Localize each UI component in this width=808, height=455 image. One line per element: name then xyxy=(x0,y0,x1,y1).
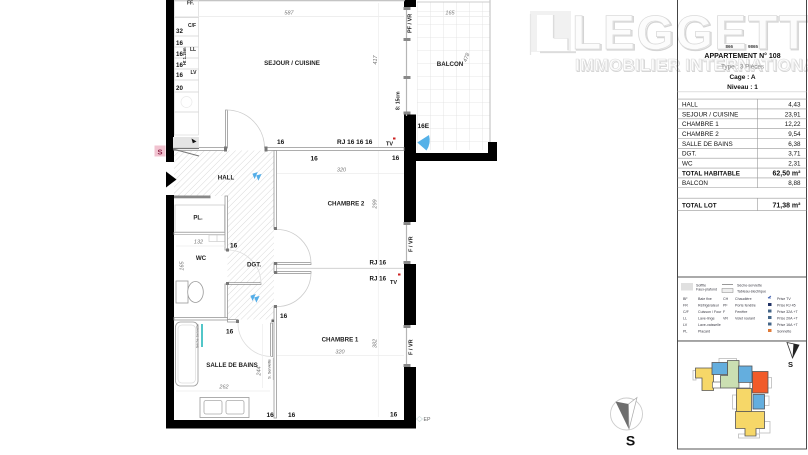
svg-text:FF.: FF. xyxy=(187,1,195,7)
svg-text:Réfrigérateur: Réfrigérateur xyxy=(698,304,720,308)
svg-text:Sèche-serviette: Sèche-serviette xyxy=(737,284,762,288)
svg-text:Porte fenêtre: Porte fenêtre xyxy=(735,304,756,308)
svg-text:S: S xyxy=(157,148,162,157)
svg-text:9865: 9865 xyxy=(748,44,759,49)
svg-text:Niveau : 1: Niveau : 1 xyxy=(727,84,758,91)
svg-text:Prise 16A +T: Prise 16A +T xyxy=(777,323,798,327)
svg-text:F / VR: F / VR xyxy=(409,339,415,355)
svg-text:Fenêtre: Fenêtre xyxy=(735,310,747,314)
svg-text:TOTAL LOT: TOTAL LOT xyxy=(682,202,717,209)
svg-text:Chaudière: Chaudière xyxy=(735,297,752,301)
svg-text:Lave-vaisselle: Lave-vaisselle xyxy=(698,323,721,327)
svg-text:16: 16 xyxy=(176,40,183,47)
svg-text:16E: 16E xyxy=(418,123,430,130)
svg-text:16: 16 xyxy=(176,72,183,79)
svg-text:16: 16 xyxy=(390,412,398,419)
svg-text:S: S xyxy=(626,433,635,449)
svg-text:382: 382 xyxy=(373,339,379,348)
svg-text:165: 165 xyxy=(445,11,455,17)
svg-text:LL: LL xyxy=(683,317,687,321)
svg-text:CHAMBRE 2: CHAMBRE 2 xyxy=(682,131,719,138)
svg-text:CHAMBRE 1: CHAMBRE 1 xyxy=(322,337,359,344)
svg-text:165: 165 xyxy=(180,260,186,270)
svg-text:RJ 16 16 16: RJ 16 16 16 xyxy=(337,139,373,146)
svg-text:417: 417 xyxy=(373,54,379,64)
svg-text:PL.: PL. xyxy=(193,216,203,222)
svg-text:16: 16 xyxy=(176,51,183,58)
svg-text:Prise 20A +T: Prise 20A +T xyxy=(777,317,798,321)
svg-text:Sonnette: Sonnette xyxy=(777,330,791,334)
svg-text:SEJOUR / CUISINE: SEJOUR / CUISINE xyxy=(264,60,320,67)
svg-text:16: 16 xyxy=(288,412,296,419)
svg-text:Lave-linge: Lave-linge xyxy=(698,317,715,321)
svg-text:16: 16 xyxy=(230,243,238,250)
svg-text:Type : 3 Pièces: Type : 3 Pièces xyxy=(721,63,764,70)
svg-text:2,31: 2,31 xyxy=(788,161,801,168)
svg-text:DGT.: DGT. xyxy=(682,151,697,158)
svg-text:20: 20 xyxy=(176,85,183,92)
svg-text:Baie fixe: Baie fixe xyxy=(698,297,712,301)
svg-text:S: S xyxy=(788,360,793,369)
svg-text:16: 16 xyxy=(226,329,234,336)
svg-text:12,22: 12,22 xyxy=(785,121,801,128)
svg-text:244: 244 xyxy=(257,366,263,376)
svg-text:TV: TV xyxy=(386,142,393,148)
svg-text:LV: LV xyxy=(191,70,198,76)
svg-text:LV: LV xyxy=(683,323,688,327)
svg-text:262: 262 xyxy=(218,385,228,391)
svg-text:LL: LL xyxy=(190,47,196,53)
svg-text:320: 320 xyxy=(337,168,347,174)
svg-text:16: 16 xyxy=(176,62,183,69)
svg-text:132: 132 xyxy=(194,240,203,246)
svg-text:Prise TV: Prise TV xyxy=(777,297,791,301)
svg-text:APPARTEMENT N° 108: APPARTEMENT N° 108 xyxy=(704,52,780,60)
svg-text:6,38: 6,38 xyxy=(788,141,801,148)
svg-text:32: 32 xyxy=(176,28,183,35)
svg-text:320: 320 xyxy=(335,350,345,356)
svg-text:VR: VR xyxy=(723,317,728,321)
svg-text:TOTAL HABITABLE: TOTAL HABITABLE xyxy=(682,170,740,177)
svg-text:8,88: 8,88 xyxy=(788,180,801,187)
svg-text:F / VR: F / VR xyxy=(409,236,415,252)
svg-text:3,71: 3,71 xyxy=(788,151,801,158)
svg-text:BALCON: BALCON xyxy=(682,180,708,187)
svg-text:62,50 m²: 62,50 m² xyxy=(772,170,801,177)
svg-text:PF / VR: PF / VR xyxy=(408,14,414,33)
svg-text:16: 16 xyxy=(392,155,400,162)
svg-text:Prise RJ 45: Prise RJ 45 xyxy=(777,304,796,308)
svg-text:Sèche-Serviette: Sèche-Serviette xyxy=(196,324,200,348)
svg-text:Volet roulant: Volet roulant xyxy=(735,317,755,321)
svg-text:23,91: 23,91 xyxy=(785,111,801,118)
svg-text:CH: CH xyxy=(723,297,729,301)
svg-text:CHAMBRE 2: CHAMBRE 2 xyxy=(328,201,365,208)
svg-text:CHAMBRE 1: CHAMBRE 1 xyxy=(682,121,719,128)
svg-text:71,38 m²: 71,38 m² xyxy=(772,202,801,209)
svg-text:WC: WC xyxy=(682,161,693,168)
svg-text:PL: PL xyxy=(683,330,687,334)
svg-text:587: 587 xyxy=(284,11,294,17)
svg-text:WC: WC xyxy=(196,255,207,262)
svg-text:SEJOUR / CUISINE: SEJOUR / CUISINE xyxy=(682,111,738,118)
svg-text:FR: FR xyxy=(683,304,688,308)
svg-text:16: 16 xyxy=(280,313,288,320)
svg-text:Placard: Placard xyxy=(698,330,710,334)
svg-text:Faux-plafond: Faux-plafond xyxy=(696,288,717,292)
svg-text:Tableau électrique: Tableau électrique xyxy=(737,290,766,294)
svg-text:C/F: C/F xyxy=(683,310,690,314)
svg-text:TV: TV xyxy=(390,280,397,286)
svg-text:HALL: HALL xyxy=(682,101,698,108)
svg-text:866: 866 xyxy=(726,44,734,49)
svg-text:DGT.: DGT. xyxy=(247,262,261,269)
svg-text:4,43: 4,43 xyxy=(788,101,801,108)
svg-text:8: 15cm: 8: 15cm xyxy=(396,91,402,110)
svg-text:S. Serviette: S. Serviette xyxy=(268,359,272,379)
svg-text:Cuisson / Four: Cuisson / Four xyxy=(698,310,722,314)
svg-text:LEGGETT: LEGGETT xyxy=(572,7,808,60)
svg-text:BALCON: BALCON xyxy=(437,61,464,68)
svg-text:16: 16 xyxy=(311,156,319,163)
svg-text:Cage : A: Cage : A xyxy=(729,74,755,81)
svg-text:299: 299 xyxy=(373,199,379,209)
svg-text:SALLE DE BAINS: SALLE DE BAINS xyxy=(682,141,733,148)
svg-text:HALL: HALL xyxy=(218,175,235,182)
svg-text:16: 16 xyxy=(267,412,275,419)
svg-text:BF: BF xyxy=(683,297,688,301)
svg-text:Prise 32A +T: Prise 32A +T xyxy=(777,310,798,314)
svg-text:EP: EP xyxy=(424,417,431,423)
svg-text:9,54: 9,54 xyxy=(788,131,801,138)
svg-text:PF: PF xyxy=(723,304,728,308)
svg-text:16: 16 xyxy=(277,139,285,146)
svg-text:SALLE DE BAINS: SALLE DE BAINS xyxy=(206,362,258,369)
svg-text:C/F: C/F xyxy=(188,23,196,29)
